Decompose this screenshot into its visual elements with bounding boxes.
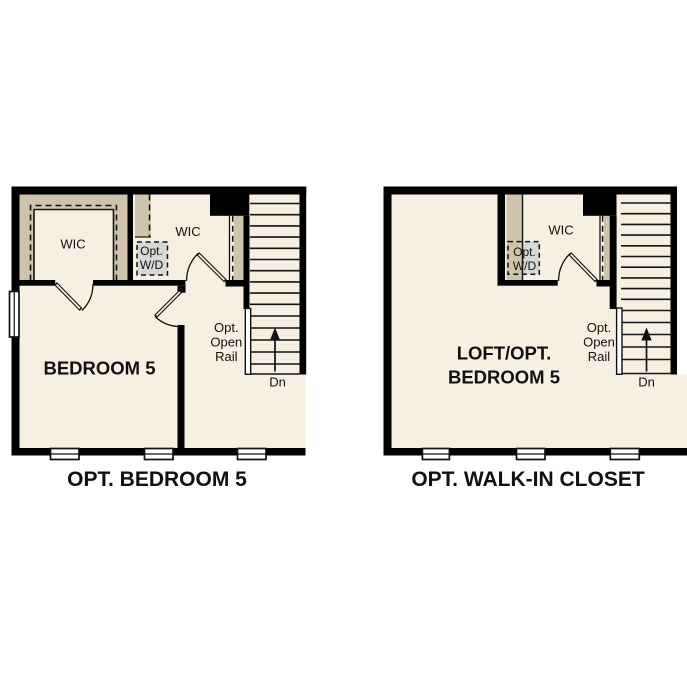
svg-text:WIC: WIC [548,223,573,238]
svg-text:WIC: WIC [175,224,200,239]
svg-text:WIC: WIC [60,237,85,252]
svg-text:Opt.: Opt. [513,245,536,259]
svg-text:Opt.: Opt. [214,320,239,335]
svg-text:Opt.: Opt. [140,244,163,258]
svg-text:Rail: Rail [215,349,238,364]
svg-text:Rail: Rail [588,349,611,364]
svg-text:OPT. WALK-IN CLOSET: OPT. WALK-IN CLOSET [411,468,645,491]
svg-text:OPT. BEDROOM 5: OPT. BEDROOM 5 [67,468,247,491]
svg-text:Open: Open [210,335,242,350]
svg-text:BEDROOM 5: BEDROOM 5 [43,358,155,379]
svg-text:Open: Open [583,335,615,350]
svg-text:W/D: W/D [513,259,537,273]
svg-text:W/D: W/D [140,258,164,272]
svg-text:BEDROOM 5: BEDROOM 5 [448,367,560,388]
svg-text:Opt.: Opt. [587,320,612,335]
svg-text:Dn: Dn [269,375,286,390]
svg-text:LOFT/OPT.: LOFT/OPT. [457,343,552,364]
svg-text:Dn: Dn [638,375,655,390]
